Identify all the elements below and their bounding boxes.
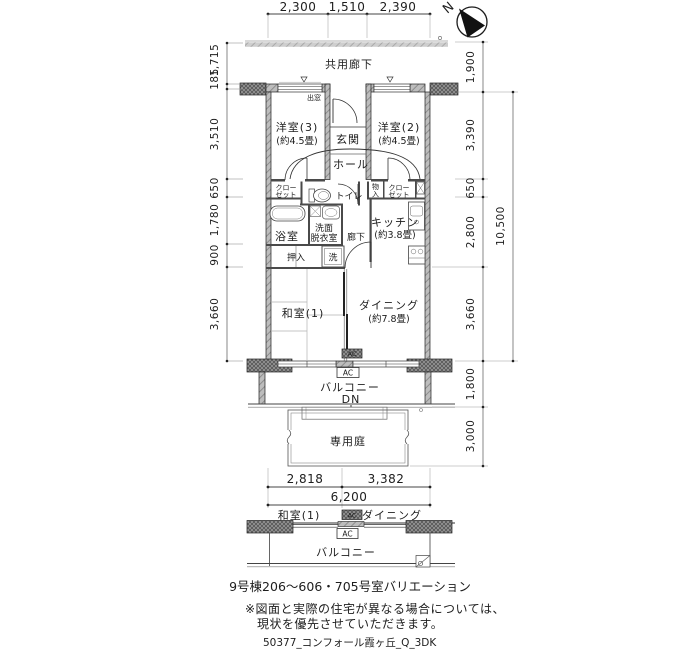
storage-label2: 入 xyxy=(372,191,379,199)
floorplan-page: 2,300 1,510 2,390 N 共用廊下 xyxy=(0,0,700,650)
entrance-label: 玄関 xyxy=(336,132,360,146)
dim-left-3: 3,510 xyxy=(209,118,221,151)
western2-label: 洋室(2) xyxy=(378,120,421,134)
common-corridor-label: 共用廊下 xyxy=(325,57,373,71)
kitchen-size: (約3.8畳) xyxy=(374,229,416,241)
dim-top-2: 1,510 xyxy=(329,0,366,14)
hallway-label: 廊下 xyxy=(347,231,365,243)
kitchen-stove xyxy=(409,246,426,264)
note-line2: 現状を優先させていただきます。 xyxy=(257,617,443,631)
closet-right-label2: ゼット xyxy=(389,190,410,199)
bay-window xyxy=(278,84,322,92)
variation-ac-outdoor-label: AC xyxy=(342,530,352,539)
dim-left-4: 650 xyxy=(209,177,221,199)
dining-door-arc xyxy=(345,242,371,268)
dim-bottom-2: 3,382 xyxy=(368,472,405,486)
western3-door-arc xyxy=(285,158,307,180)
hall-label: ホール xyxy=(333,158,369,171)
balcony-wall-right xyxy=(425,372,431,404)
oshiire-label: 押入 xyxy=(287,252,305,264)
dim-left-2: 185 xyxy=(209,68,221,90)
washitsu-label: 和室(1) xyxy=(282,306,325,320)
dim-right-4: 2,800 xyxy=(465,216,477,249)
dim-right-1: 1,900 xyxy=(465,51,477,84)
dim-left-7: 3,660 xyxy=(209,298,221,331)
file-id-label: 50377_コンフォール霞ヶ丘_Q_3DK xyxy=(263,637,437,649)
dim-right-total: 10,500 xyxy=(495,206,507,246)
vent-mark-right xyxy=(387,77,393,82)
variation-washitsu-label: 和室(1) xyxy=(278,508,321,522)
outer-wall-right xyxy=(425,92,430,361)
western3-size: (約4.5畳) xyxy=(276,135,318,147)
toilet-bowl-icon xyxy=(314,189,331,202)
north-label: N xyxy=(440,0,457,17)
variation-wing-wall-left xyxy=(247,521,293,534)
notes: ※図面と実際の住宅が異なる場合については、 現状を優先させていただきます。 50… xyxy=(245,601,505,649)
ac-outdoor-label: AC xyxy=(343,369,353,378)
dim-top-1: 2,300 xyxy=(280,0,317,14)
toilet-label: トイレ xyxy=(335,192,362,202)
bath-washroom: 浴室 洗面 脱衣室 廊下 xyxy=(270,206,365,244)
dimension-bottom: 2,818 3,382 6,200 xyxy=(267,468,432,508)
dim-right-5: 3,660 xyxy=(465,298,477,331)
ac-indoor-label: AC xyxy=(348,350,357,358)
dim-top-3: 2,390 xyxy=(380,0,417,14)
wing-wall-top-right xyxy=(430,83,458,95)
dim-right-7: 3,000 xyxy=(465,420,477,453)
dining-label: ダイニング xyxy=(359,298,419,312)
variation-ac-indoor-label: AC xyxy=(348,512,357,520)
bay-window-label: 出窓 xyxy=(307,93,321,102)
balcony-wall-left xyxy=(259,372,265,404)
western2-size: (約4.5畳) xyxy=(378,135,420,147)
oshiire-laundry: 押入 洗 xyxy=(287,246,344,267)
north-arrow: N xyxy=(440,0,487,38)
washroom-label2: 脱衣室 xyxy=(310,232,337,244)
note-line1: ※図面と実際の住宅が異なる場合については、 xyxy=(245,601,505,616)
dimension-top: 2,300 1,510 2,390 xyxy=(267,0,432,38)
variation-wing-wall-right xyxy=(406,521,452,534)
dim-right-3: 650 xyxy=(465,177,477,199)
western2-door-arc xyxy=(388,158,410,180)
bath-label: 浴室 xyxy=(275,229,299,243)
vent-mark-left xyxy=(301,77,307,82)
floorplan-drawing: 2,300 1,510 2,390 N 共用廊下 xyxy=(0,0,700,650)
variation-dining-label: ダイニング xyxy=(362,508,422,522)
dim-left-5: 1,780 xyxy=(209,204,221,237)
variation-plan: 和室(1) ダイニング AC AC バルコニー 9号棟206〜606・705号室… xyxy=(229,508,471,594)
common-corridor: 共用廊下 xyxy=(245,36,448,71)
porch-wall-left xyxy=(325,84,330,180)
toilet-room: トイレ xyxy=(309,184,363,204)
window-western2 xyxy=(374,84,410,92)
washroom-label1: 洗面 xyxy=(315,222,333,234)
entrance-door-arc xyxy=(333,99,357,123)
wing-wall-top-left xyxy=(240,83,266,95)
western3-label: 洋室(3) xyxy=(276,120,319,134)
dining-size: (約7.8畳) xyxy=(368,313,410,325)
dimension-left: 1,715 185 3,510 650 1,780 900 3,660 xyxy=(209,42,243,363)
garden-label: 専用庭 xyxy=(330,434,366,448)
dim-left-6: 900 xyxy=(209,244,221,266)
variation-balcony-label: バルコニー xyxy=(316,546,376,559)
outer-wall-left xyxy=(266,92,271,361)
laundry-label: 洗 xyxy=(328,252,337,264)
kitchen-label: キッチン xyxy=(371,216,419,229)
closet-left-label2: ゼット xyxy=(276,190,297,199)
dim-right-2: 3,390 xyxy=(465,119,477,152)
dim-bottom-1: 2,818 xyxy=(287,472,324,486)
bedrooms: 洋室(3) (約4.5畳) 洋室(2) (約4.5畳) xyxy=(276,120,421,180)
kitchen: キッチン (約3.8畳) xyxy=(371,202,425,264)
dn-label: DN xyxy=(342,393,361,406)
variation-caption: 9号棟206〜606・705号室バリエーション xyxy=(229,579,471,594)
dim-bottom-total: 6,200 xyxy=(331,490,368,504)
dim-right-6: 1,800 xyxy=(465,368,477,401)
